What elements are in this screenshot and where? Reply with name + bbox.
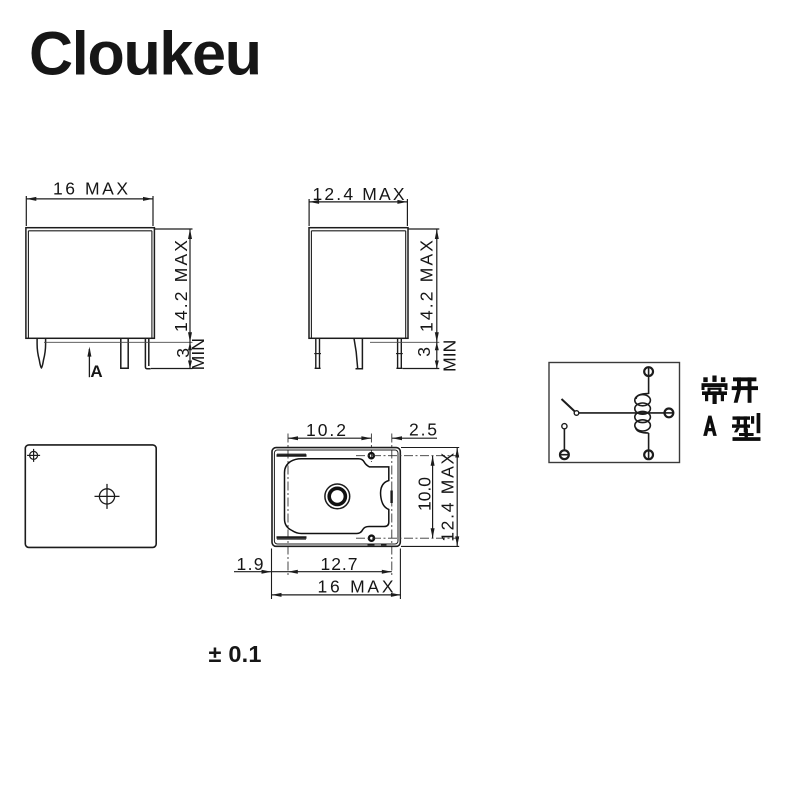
svg-text:Cloukeu: Cloukeu [29, 20, 262, 88]
svg-text:MIN: MIN [188, 338, 208, 370]
svg-text:1.9: 1.9 [237, 554, 264, 574]
svg-text:10.2: 10.2 [306, 420, 346, 440]
svg-text:10.0: 10.0 [415, 477, 435, 511]
svg-text:± 0.1: ± 0.1 [209, 641, 262, 667]
svg-text:16 MAX: 16 MAX [53, 179, 128, 199]
svg-text:12.7: 12.7 [321, 554, 358, 574]
svg-text:2.5: 2.5 [409, 420, 437, 440]
svg-text:A: A [90, 362, 102, 381]
svg-text:MIN: MIN [440, 340, 460, 372]
svg-text:3: 3 [414, 347, 434, 357]
